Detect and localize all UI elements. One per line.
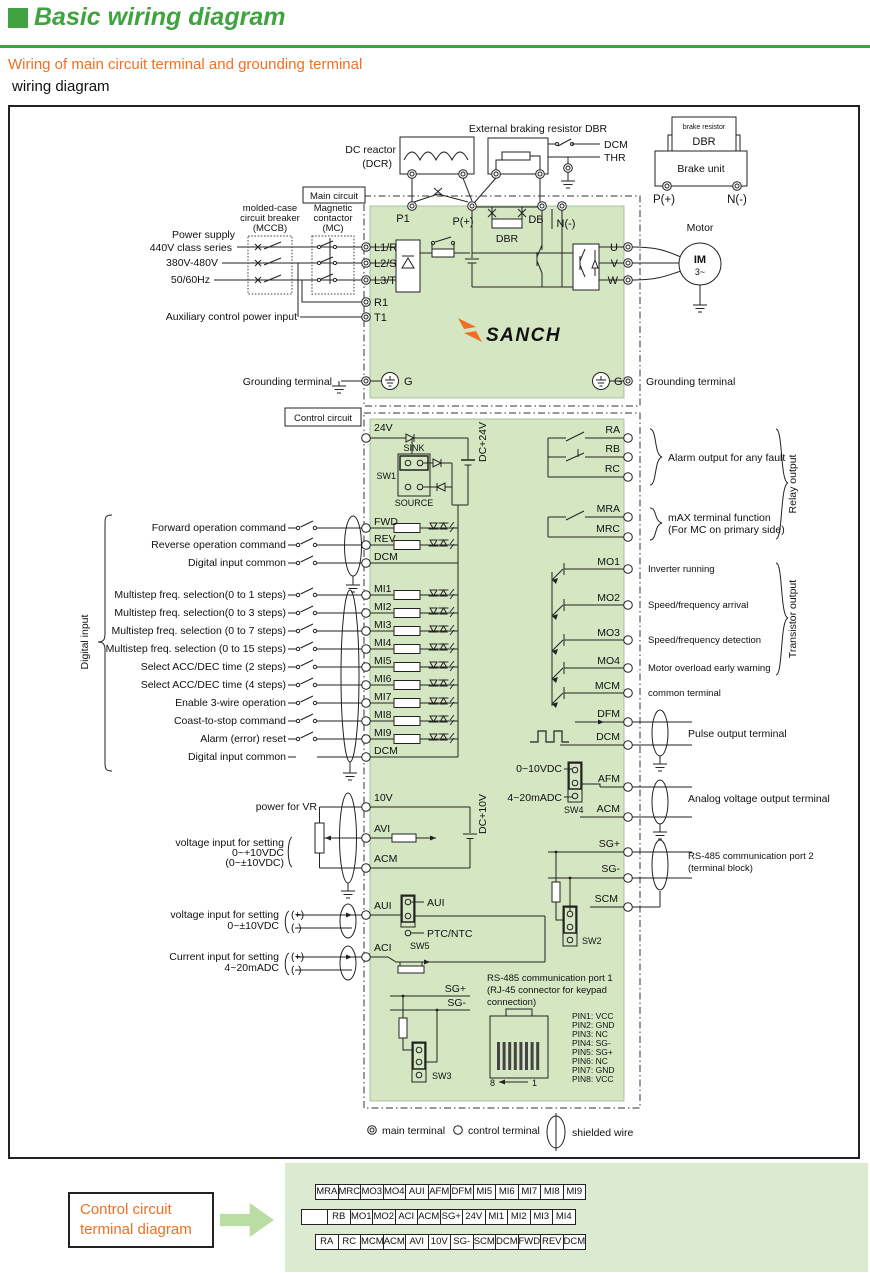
table-cell-blank	[301, 1209, 328, 1225]
transistor-output-group-label: Transistor output	[787, 580, 799, 658]
arrow-right-icon	[220, 1203, 274, 1237]
sw3-label: SW3	[432, 1071, 452, 1081]
din-label: Select ACC/DEC time (2 steps)	[141, 661, 286, 673]
source-label: SOURCE	[395, 498, 434, 508]
dc10v-label: DC+10V	[477, 794, 489, 834]
rj45-pin1: 1	[532, 1078, 537, 1088]
terminal-table-row-1: MRA MRC MO3 MO4 AUI AFM DFM MI5 MI6 MI7 …	[316, 1184, 586, 1200]
mo-terminal: MO2	[597, 592, 620, 604]
main-circuit-label: Main circuit	[310, 191, 358, 202]
thr-label: THR	[604, 152, 626, 164]
table-cell: MRA	[315, 1184, 339, 1200]
table-cell: MI6	[495, 1184, 519, 1200]
din-label: Reverse operation command	[151, 539, 286, 551]
table-cell: MO1	[350, 1209, 374, 1225]
freq-label: 50/60Hz	[171, 274, 210, 286]
sw5-option-ptc: PTC/NTC	[427, 928, 473, 940]
sw5-label: SW5	[410, 941, 430, 951]
sw1-label: SW1	[376, 471, 396, 481]
table-cell: MCM	[360, 1234, 384, 1250]
table-cell: RA	[315, 1234, 339, 1250]
port1-label-2: (RJ-45 connector for keypad	[487, 985, 607, 996]
aci-input-label-2: 4~20mADC	[224, 962, 279, 974]
l3-label: L3/T	[374, 275, 396, 287]
din-terminal: MI2	[374, 601, 392, 613]
din-label: Alarm (error) reset	[200, 733, 286, 745]
acm-out-label: ACM	[597, 803, 620, 815]
24v-label: 24V	[374, 422, 393, 434]
sw4-label: SW4	[564, 805, 584, 815]
table-cell: MO4	[383, 1184, 407, 1200]
din-terminal: MI4	[374, 637, 392, 649]
alarm-output-label: Alarm output for any fault	[668, 452, 785, 464]
din-terminal: MI6	[374, 673, 392, 685]
table-cell: MRC	[338, 1184, 362, 1200]
scm-label: SCM	[595, 893, 618, 905]
table-cell: DCM	[563, 1234, 587, 1250]
din-label: Select ACC/DEC time (4 steps)	[141, 679, 286, 691]
mo-terminal: MCM	[595, 680, 620, 692]
p1-label: P1	[396, 213, 409, 225]
aci-plus: (+)	[291, 951, 304, 963]
din-label: Multistep freq. selection(0 to 3 steps)	[114, 607, 286, 619]
table-cell: MI2	[507, 1209, 531, 1225]
t1-label: T1	[374, 312, 387, 324]
table-cell: MO2	[372, 1209, 396, 1225]
dc24v-label: DC+24V	[477, 422, 489, 462]
avi-terminal-label: AVI	[374, 823, 390, 835]
sg-minus-label: SG-	[447, 997, 466, 1009]
dbr-inner-label: DBR	[496, 233, 519, 245]
din-terminal: REV	[374, 533, 396, 545]
table-cell: MI4	[552, 1209, 576, 1225]
dbr-top-label: DBR	[692, 136, 715, 148]
motor-label: Motor	[687, 222, 714, 234]
din-terminal: FWD	[374, 516, 398, 528]
10v-terminal-label: 10V	[374, 792, 393, 804]
rb-label: RB	[605, 443, 620, 455]
relay-output-group-label: Relay output	[787, 454, 799, 513]
v-label: V	[611, 258, 619, 270]
table-cell: SCM	[473, 1234, 497, 1250]
table-cell: DCM	[495, 1234, 519, 1250]
aci-terminal-label: ACI	[374, 942, 392, 954]
pin-label: PIN8: VCC	[572, 1074, 614, 1084]
dcm-out-label: DCM	[596, 731, 620, 743]
wiring-diagram: DC reactor (DCR) External braking resist…	[0, 0, 870, 1160]
table-cell: DFM	[450, 1184, 474, 1200]
ext-braking-label: External braking resistor DBR	[469, 123, 608, 135]
din-label: Multistep freq. selection(0 to 1 steps)	[114, 589, 286, 601]
r1-label: R1	[374, 297, 388, 309]
control-circuit-label: Control circuit	[294, 413, 352, 424]
din-terminal: MI9	[374, 727, 392, 739]
table-cell: SG+	[440, 1209, 464, 1225]
avi-input-label-3: (0~±10VDC)	[225, 857, 284, 869]
port2-label-2: (terminal block)	[688, 863, 753, 874]
din-terminal: MI5	[374, 655, 392, 667]
sgm-out-label: SG-	[601, 863, 620, 875]
nminus-label: N(-)	[557, 218, 576, 230]
dc-reactor-label: DC reactor	[345, 144, 396, 156]
aui-terminal-label: AUI	[374, 900, 392, 912]
ccd-label-line-2: terminal diagram	[80, 1220, 212, 1240]
sink-label: SINK	[403, 443, 424, 453]
table-cell: ACM	[383, 1234, 407, 1250]
power-for-vr-label: power for VR	[256, 801, 318, 813]
mrc-label: MRC	[596, 523, 620, 535]
max-function-label-1: mAX terminal function	[668, 512, 771, 524]
table-cell: AFM	[428, 1184, 452, 1200]
mra-label: MRA	[597, 503, 620, 515]
mo-terminal: MO1	[597, 556, 620, 568]
din-label: Coast-to-stop command	[174, 715, 286, 727]
dcm-top-label: DCM	[604, 139, 628, 151]
aui-input-label-2: 0~±10VDC	[227, 920, 279, 932]
pulse-output-label: Pulse output terminal	[688, 728, 787, 740]
table-cell: MI3	[530, 1209, 554, 1225]
terminal-table-row-2: RB MO1 MO2 ACI ACM SG+ 24V MI1 MI2 MI3 M…	[302, 1209, 576, 1225]
logo-text: SANCH	[486, 325, 561, 346]
afm-range-2: 4~20mADC	[507, 792, 562, 804]
voltage-label: 380V-480V	[166, 257, 218, 269]
mo-label: Motor overload early warning	[648, 663, 771, 674]
mo-label: Inverter running	[648, 564, 715, 575]
w-label: W	[608, 275, 619, 287]
mccb-label-3: (MCCB)	[253, 223, 287, 234]
class-series-label: 440V class series	[150, 242, 232, 254]
table-cell: MI1	[485, 1209, 509, 1225]
din-label: Multistep freq. selection (0 to 15 steps…	[106, 643, 286, 655]
port1-label-3: connection)	[487, 997, 536, 1008]
table-cell: MI9	[563, 1184, 587, 1200]
brake-unit-label: Brake unit	[677, 163, 724, 175]
mo-label: Speed/frequency detection	[648, 635, 761, 646]
mo-label: common terminal	[648, 688, 721, 699]
page: Basic wiring diagram Wiring of main circ…	[0, 0, 870, 1273]
analog-output-label: Analog voltage output terminal	[688, 793, 830, 805]
mo-label: Speed/frequency arrival	[648, 600, 748, 611]
table-cell: ACI	[395, 1209, 419, 1225]
table-cell: 10V	[428, 1234, 452, 1250]
u-label: U	[610, 242, 618, 254]
legend-control-terminal: control terminal	[468, 1125, 540, 1137]
table-cell: MI8	[540, 1184, 564, 1200]
din-label: Multistep freq. selection (0 to 7 steps)	[112, 625, 287, 637]
mo-terminal: MO3	[597, 627, 620, 639]
port2-label-1: RS-485 communication port 2	[688, 851, 814, 862]
grounding-right-label: Grounding terminal	[646, 376, 735, 388]
legend-main-terminal: main terminal	[382, 1125, 445, 1137]
db-label: DB	[528, 214, 543, 226]
table-cell: FWD	[518, 1234, 542, 1250]
rj45-pin8: 8	[490, 1078, 495, 1088]
mo-terminal: MO4	[597, 655, 620, 667]
sgp-out-label: SG+	[599, 838, 620, 850]
digital-input-group-label: Digital input	[79, 614, 91, 669]
power-supply-label: Power supply	[172, 229, 236, 241]
afm-label: AFM	[598, 773, 620, 785]
legend-shielded-wire: shielded wire	[572, 1127, 633, 1139]
table-cell: 24V	[462, 1209, 486, 1225]
din-terminal: MI3	[374, 619, 392, 631]
max-function-label-2: (For MC on primary side)	[668, 524, 785, 536]
table-cell: MO3	[360, 1184, 384, 1200]
grounding-left-label: Grounding terminal	[243, 376, 332, 388]
din-label: Digital input common	[188, 557, 286, 569]
dcr-label: (DCR)	[362, 158, 392, 170]
terminal-table-row-3: RA RC MCM ACM AVI 10V SG- SCM DCM FWD RE…	[316, 1234, 586, 1250]
table-cell: REV	[540, 1234, 564, 1250]
din-terminal: MI8	[374, 709, 392, 721]
g-left-label: G	[404, 376, 413, 388]
brake-n-label: N(-)	[727, 194, 747, 206]
g-right-label: G	[614, 376, 623, 388]
table-cell: AUI	[405, 1184, 429, 1200]
dfm-label: DFM	[597, 708, 620, 720]
aui-plus: (+)	[291, 909, 304, 921]
din-terminal: MI7	[374, 691, 392, 703]
din-label: Digital input common	[188, 751, 286, 763]
rc-label: RC	[605, 463, 621, 475]
aui-minus: (-)	[291, 922, 302, 934]
afm-range-1: 0~10VDC	[516, 763, 562, 775]
brake-resistor-label: brake resistor	[683, 124, 726, 131]
control-terminal-panel: MRA MRC MO3 MO4 AUI AFM DFM MI5 MI6 MI7 …	[285, 1163, 868, 1272]
acm-terminal-label: ACM	[374, 853, 397, 865]
motor-phase: 3~	[695, 267, 705, 277]
pplus-label: P(+)	[452, 216, 473, 228]
sw2-label: SW2	[582, 936, 602, 946]
table-cell: RB	[327, 1209, 351, 1225]
din-terminal: DCM	[374, 551, 398, 563]
din-label: Enable 3-wire operation	[175, 697, 286, 709]
aci-minus: (-)	[291, 964, 302, 976]
aux-power-label: Auxiliary control power input	[166, 311, 297, 323]
table-cell: SG-	[450, 1234, 474, 1250]
table-cell: MI5	[473, 1184, 497, 1200]
din-terminal: DCM	[374, 745, 398, 757]
table-cell: ACM	[417, 1209, 441, 1225]
brake-p-label: P(+)	[653, 194, 675, 206]
l2-label: L2/S	[374, 258, 397, 270]
ra-label: RA	[605, 424, 620, 436]
port1-label-1: RS-485 communication port 1	[487, 973, 613, 984]
sw5-option-aui: AUI	[427, 897, 445, 909]
motor-im: IM	[694, 254, 706, 266]
table-cell: AVI	[405, 1234, 429, 1250]
ccd-label-line-1: Control circuit	[80, 1200, 212, 1220]
sg-plus-label: SG+	[445, 983, 466, 995]
control-circuit-terminal-diagram-box: Control circuit terminal diagram	[68, 1192, 214, 1248]
mc-label-3: (MC)	[322, 223, 343, 234]
din-terminal: MI1	[374, 583, 392, 595]
table-cell: RC	[338, 1234, 362, 1250]
table-cell: MI7	[518, 1184, 542, 1200]
din-label: Forward operation command	[152, 522, 286, 534]
l1-label: L1/R	[374, 242, 397, 254]
